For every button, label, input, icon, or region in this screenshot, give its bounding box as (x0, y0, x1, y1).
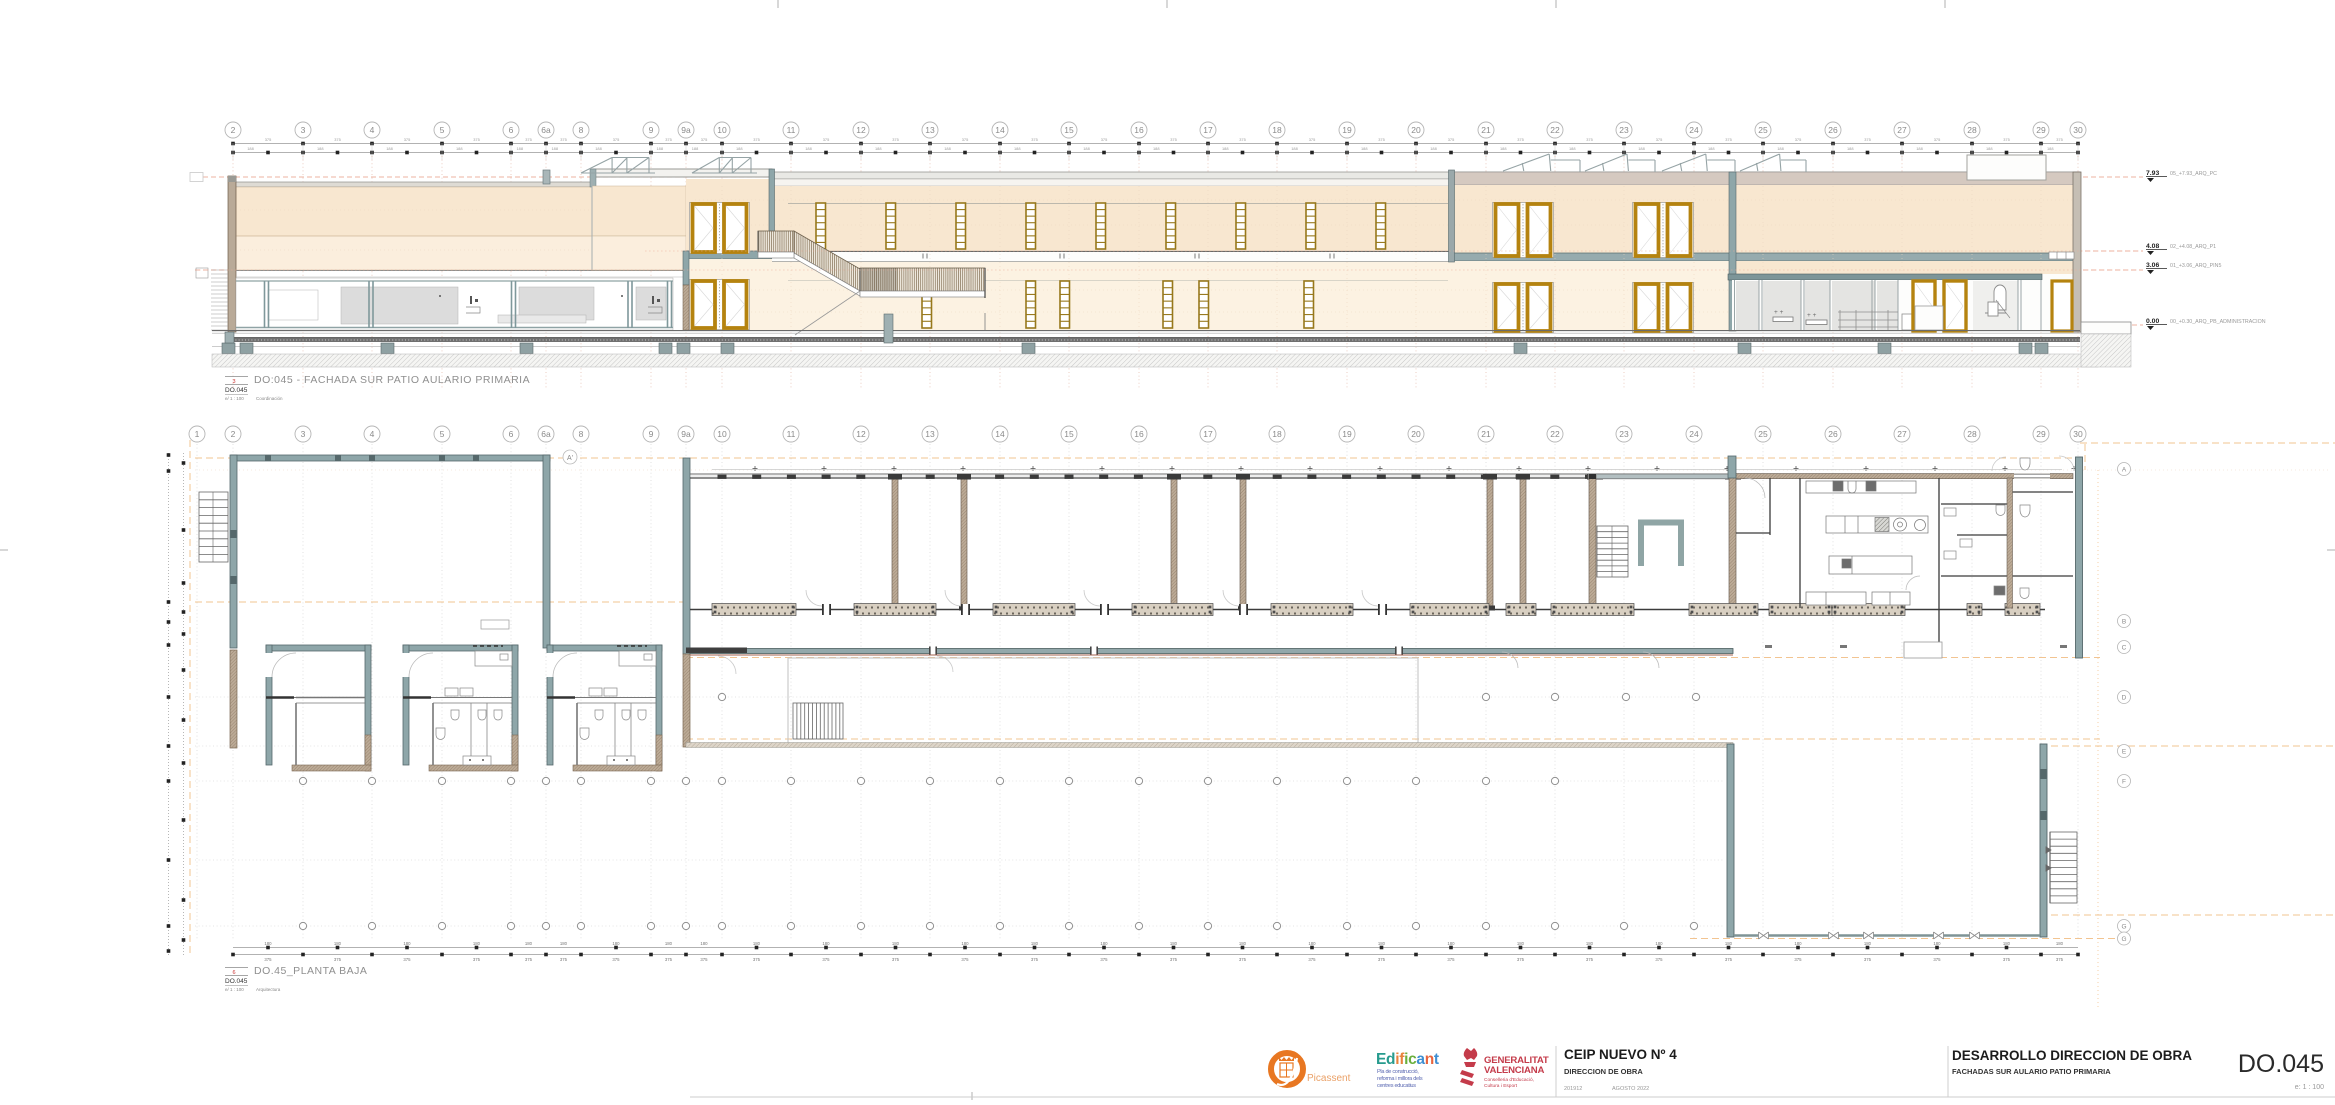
svg-text:13: 13 (925, 125, 935, 135)
svg-text:29: 29 (2036, 125, 2046, 135)
svg-text:375: 375 (1308, 957, 1316, 962)
svg-text:2: 2 (231, 429, 236, 439)
svg-text:reforma i millora dels: reforma i millora dels (1377, 1076, 1423, 1082)
svg-text:188: 188 (1222, 146, 1229, 151)
svg-text:188: 188 (517, 146, 524, 151)
svg-text:188: 188 (1361, 146, 1368, 151)
svg-text:180: 180 (612, 941, 620, 946)
svg-text:188: 188 (1430, 146, 1437, 151)
svg-text:15: 15 (1064, 429, 1074, 439)
svg-text:180: 180 (2003, 941, 2011, 946)
svg-text:DO.045: DO.045 (2238, 1050, 2324, 1078)
svg-text:375: 375 (1239, 137, 1246, 142)
svg-text:VALENCIANA: VALENCIANA (1484, 1065, 1544, 1076)
svg-text:G: G (2121, 936, 2126, 943)
svg-text:15: 15 (1064, 125, 1074, 135)
svg-text:10: 10 (717, 429, 727, 439)
svg-text:14: 14 (995, 125, 1005, 135)
svg-text:375: 375 (1170, 137, 1177, 142)
svg-text:5: 5 (440, 429, 445, 439)
svg-text:188: 188 (692, 146, 699, 151)
svg-text:A': A' (567, 455, 573, 462)
svg-text:375: 375 (1031, 957, 1039, 962)
svg-text:Pla de construcció,: Pla de construcció, (1377, 1069, 1419, 1075)
svg-text:180: 180 (560, 941, 568, 946)
svg-text:9: 9 (649, 429, 654, 439)
svg-text:375: 375 (265, 137, 272, 142)
svg-text:17: 17 (1203, 125, 1213, 135)
svg-text:180: 180 (1933, 941, 1941, 946)
svg-text:FACHADAS SUR AULARIO PATIO PRI: FACHADAS SUR AULARIO PATIO PRIMARIA (1952, 1067, 2111, 1076)
svg-text:12: 12 (856, 429, 866, 439)
svg-text:2: 2 (231, 125, 236, 135)
svg-text:8: 8 (579, 429, 584, 439)
svg-text:e/ 1 : 100: e/ 1 : 100 (225, 987, 244, 992)
svg-text:188: 188 (595, 146, 602, 151)
svg-text:6: 6 (509, 125, 514, 135)
svg-text:180: 180 (700, 941, 708, 946)
svg-text:e/ 1 : 100: e/ 1 : 100 (225, 396, 244, 401)
svg-text:8: 8 (579, 125, 584, 135)
svg-text:375: 375 (1378, 957, 1386, 962)
svg-text:375: 375 (2056, 137, 2063, 142)
svg-text:188: 188 (1500, 146, 1507, 151)
svg-text:27: 27 (1897, 429, 1907, 439)
svg-text:27: 27 (1897, 125, 1907, 135)
svg-text:375: 375 (892, 137, 899, 142)
svg-text:Edificant: Edificant (1376, 1051, 1439, 1068)
svg-text:375: 375 (753, 957, 761, 962)
svg-text:375: 375 (473, 137, 480, 142)
svg-text:6: 6 (509, 429, 514, 439)
svg-text:5: 5 (440, 125, 445, 135)
svg-text:Coordinación: Coordinación (256, 396, 283, 401)
svg-text:180: 180 (1031, 941, 1039, 946)
svg-text:DIRECCION DE OBRA: DIRECCION DE OBRA (1564, 1067, 1643, 1076)
svg-text:188: 188 (1986, 146, 1993, 151)
svg-text:375: 375 (1170, 957, 1178, 962)
svg-text:AGOSTO 2022: AGOSTO 2022 (1612, 1086, 1649, 1092)
svg-text:375: 375 (753, 137, 760, 142)
svg-text:375: 375 (560, 137, 567, 142)
svg-text:188: 188 (1014, 146, 1021, 151)
svg-text:Cultura i Esport: Cultura i Esport (1484, 1083, 1518, 1089)
svg-text:+ +: + + (1774, 309, 1784, 316)
svg-text:180: 180 (1655, 941, 1663, 946)
svg-text:D: D (2122, 694, 2127, 701)
svg-text:201912: 201912 (1564, 1086, 1582, 1092)
svg-text:01_+3.06_ARQ_PIN5: 01_+3.06_ARQ_PIN5 (2170, 263, 2221, 269)
svg-text:375: 375 (2056, 957, 2064, 962)
svg-text:188: 188 (1153, 146, 1160, 151)
svg-text:F: F (2122, 778, 2126, 785)
svg-text:CEIP NUEVO Nº 4: CEIP NUEVO Nº 4 (1564, 1047, 1677, 1062)
svg-text:188: 188 (805, 146, 812, 151)
svg-text:180: 180 (1170, 941, 1178, 946)
svg-text:22: 22 (1550, 125, 1560, 135)
svg-text:21: 21 (1481, 429, 1491, 439)
svg-text:375: 375 (1795, 137, 1802, 142)
svg-text:DO.045: DO.045 (225, 387, 248, 394)
svg-text:3: 3 (301, 125, 306, 135)
svg-text:24: 24 (1689, 125, 1699, 135)
svg-text:02_+4.08_ARQ_P1: 02_+4.08_ARQ_P1 (2170, 244, 2216, 250)
svg-text:375: 375 (1101, 137, 1108, 142)
svg-text:375: 375 (334, 957, 342, 962)
svg-text:188: 188 (1638, 146, 1645, 151)
svg-text:180: 180 (1308, 941, 1316, 946)
svg-text:19: 19 (1342, 125, 1352, 135)
svg-text:28: 28 (1967, 125, 1977, 135)
svg-text:188: 188 (1708, 146, 1715, 151)
svg-text:Conselleria d'Educació,: Conselleria d'Educació, (1484, 1077, 1534, 1083)
svg-text:C: C (2122, 644, 2127, 651)
svg-text:G: G (2121, 923, 2126, 930)
svg-text:180: 180 (753, 941, 761, 946)
svg-text:00_+0.30_ARQ_PB_ADMINISTRACION: 00_+0.30_ARQ_PB_ADMINISTRACION (2170, 319, 2266, 325)
svg-text:3: 3 (301, 429, 306, 439)
svg-text:188: 188 (736, 146, 743, 151)
svg-text:375: 375 (334, 137, 341, 142)
svg-text:180: 180 (1100, 941, 1108, 946)
svg-text:29: 29 (2036, 429, 2046, 439)
svg-text:20: 20 (1411, 125, 1421, 135)
svg-text:375: 375 (1725, 137, 1732, 142)
svg-text:188: 188 (1569, 146, 1576, 151)
svg-text:18: 18 (1272, 125, 1282, 135)
svg-text:19: 19 (1342, 429, 1352, 439)
svg-text:DO:045 - FACHADA SUR PATIO AUL: DO:045 - FACHADA SUR PATIO AULARIO PRIMA… (254, 374, 530, 386)
svg-text:180: 180 (665, 941, 673, 946)
svg-text:375: 375 (1794, 957, 1802, 962)
svg-text:23: 23 (1619, 125, 1629, 135)
svg-text:30: 30 (2073, 429, 2083, 439)
svg-text:375: 375 (701, 137, 708, 142)
svg-text:188: 188 (875, 146, 882, 151)
svg-text:375: 375 (1031, 137, 1038, 142)
svg-text:375: 375 (525, 137, 532, 142)
svg-text:23: 23 (1619, 429, 1629, 439)
svg-text:B: B (2122, 618, 2126, 625)
svg-text:375: 375 (823, 137, 830, 142)
svg-text:375: 375 (1933, 957, 1941, 962)
svg-text:188: 188 (944, 146, 951, 151)
svg-text:375: 375 (961, 957, 969, 962)
svg-text:Picassent: Picassent (1307, 1073, 1351, 1084)
svg-text:375: 375 (1448, 137, 1455, 142)
svg-text:180: 180 (1378, 941, 1386, 946)
svg-text:375: 375 (473, 957, 481, 962)
svg-text:180: 180 (1794, 941, 1802, 946)
svg-text:25: 25 (1758, 125, 1768, 135)
svg-text:375: 375 (700, 957, 708, 962)
svg-text:375: 375 (560, 957, 568, 962)
svg-text:180: 180 (1586, 941, 1594, 946)
svg-text:180: 180 (1239, 941, 1247, 946)
svg-text:375: 375 (404, 137, 411, 142)
svg-text:180: 180 (264, 941, 272, 946)
svg-text:188: 188 (552, 146, 559, 151)
svg-text:26: 26 (1828, 429, 1838, 439)
svg-text:16: 16 (1134, 125, 1144, 135)
svg-text:7.93: 7.93 (2146, 170, 2159, 177)
svg-text:05_+7.93_ARQ_PC: 05_+7.93_ARQ_PC (2170, 171, 2217, 177)
svg-text:188: 188 (1291, 146, 1298, 151)
svg-text:375: 375 (1655, 957, 1663, 962)
svg-text:375: 375 (403, 957, 411, 962)
svg-text:375: 375 (1378, 137, 1385, 142)
svg-text:375: 375 (892, 957, 900, 962)
svg-text:DO.45_PLANTA BAJA: DO.45_PLANTA BAJA (254, 965, 367, 977)
svg-text:188: 188 (2047, 146, 2054, 151)
svg-text:E: E (2122, 748, 2127, 755)
svg-text:DO.045: DO.045 (225, 978, 248, 985)
svg-text:+ +: + + (1807, 312, 1817, 319)
svg-text:375: 375 (1447, 957, 1455, 962)
svg-text:180: 180 (2056, 941, 2064, 946)
svg-text:375: 375 (665, 957, 673, 962)
svg-text:375: 375 (1586, 137, 1593, 142)
svg-text:180: 180 (1725, 941, 1733, 946)
svg-text:180: 180 (334, 941, 342, 946)
svg-text:375: 375 (1864, 137, 1871, 142)
svg-text:21: 21 (1481, 125, 1491, 135)
svg-text:12: 12 (856, 125, 866, 135)
svg-text:375: 375 (1864, 957, 1872, 962)
svg-text:188: 188 (1777, 146, 1784, 151)
svg-text:20: 20 (1411, 429, 1421, 439)
svg-text:188: 188 (317, 146, 324, 151)
svg-text:18: 18 (1272, 429, 1282, 439)
svg-text:0.00: 0.00 (2146, 318, 2159, 325)
svg-text:375: 375 (2003, 137, 2010, 142)
svg-text:375: 375 (1517, 957, 1525, 962)
svg-text:375: 375 (1586, 957, 1594, 962)
svg-text:180: 180 (892, 941, 900, 946)
svg-text:188: 188 (247, 146, 254, 151)
svg-text:375: 375 (1309, 137, 1316, 142)
svg-text:9a: 9a (681, 125, 691, 135)
svg-text:10: 10 (717, 125, 727, 135)
svg-text:375: 375 (1517, 137, 1524, 142)
svg-text:375: 375 (822, 957, 830, 962)
svg-text:180: 180 (1864, 941, 1872, 946)
svg-text:375: 375 (2003, 957, 2011, 962)
svg-text:11: 11 (787, 125, 796, 135)
svg-text:16: 16 (1134, 429, 1144, 439)
svg-text:24: 24 (1689, 429, 1699, 439)
svg-text:e: 1 : 100: e: 1 : 100 (2295, 1084, 2324, 1091)
svg-text:375: 375 (264, 957, 272, 962)
svg-text:180: 180 (822, 941, 830, 946)
svg-text:375: 375 (525, 957, 533, 962)
svg-text:188: 188 (456, 146, 463, 151)
svg-text:180: 180 (403, 941, 411, 946)
svg-text:11: 11 (787, 429, 796, 439)
svg-text:180: 180 (473, 941, 481, 946)
svg-text:9: 9 (649, 125, 654, 135)
svg-text:375: 375 (613, 137, 620, 142)
svg-text:14: 14 (995, 429, 1005, 439)
svg-text:375: 375 (612, 957, 620, 962)
svg-text:180: 180 (961, 941, 969, 946)
svg-text:4: 4 (370, 125, 375, 135)
svg-text:375: 375 (1725, 957, 1733, 962)
svg-text:4: 4 (370, 429, 375, 439)
svg-text:17: 17 (1203, 429, 1213, 439)
svg-text:188: 188 (1847, 146, 1854, 151)
svg-text:A: A (2122, 466, 2127, 473)
svg-text:26: 26 (1828, 125, 1838, 135)
svg-text:13: 13 (925, 429, 935, 439)
svg-text:180: 180 (1447, 941, 1455, 946)
svg-text:375: 375 (1239, 957, 1247, 962)
svg-text:188: 188 (386, 146, 393, 151)
svg-text:188: 188 (1916, 146, 1923, 151)
svg-text:375: 375 (1934, 137, 1941, 142)
svg-text:Arquitectura: Arquitectura (256, 987, 281, 992)
svg-text:180: 180 (525, 941, 533, 946)
svg-text:6a: 6a (541, 125, 551, 135)
svg-text:DESARROLLO DIRECCION DE OBRA: DESARROLLO DIRECCION DE OBRA (1952, 1048, 2192, 1063)
svg-text:22: 22 (1550, 429, 1560, 439)
svg-text:9a: 9a (681, 429, 691, 439)
svg-text:375: 375 (962, 137, 969, 142)
svg-text:6a: 6a (541, 429, 551, 439)
svg-text:centres educatius: centres educatius (1377, 1083, 1416, 1089)
svg-text:375: 375 (665, 137, 672, 142)
svg-text:4.08: 4.08 (2146, 243, 2159, 250)
svg-text:188: 188 (1083, 146, 1090, 151)
svg-text:28: 28 (1967, 429, 1977, 439)
svg-text:25: 25 (1758, 429, 1768, 439)
svg-text:375: 375 (1100, 957, 1108, 962)
svg-text:3.06: 3.06 (2146, 262, 2159, 269)
svg-text:188: 188 (657, 146, 664, 151)
svg-text:1: 1 (195, 429, 200, 439)
svg-text:375: 375 (1656, 137, 1663, 142)
svg-text:180: 180 (1517, 941, 1525, 946)
svg-text:30: 30 (2073, 125, 2083, 135)
